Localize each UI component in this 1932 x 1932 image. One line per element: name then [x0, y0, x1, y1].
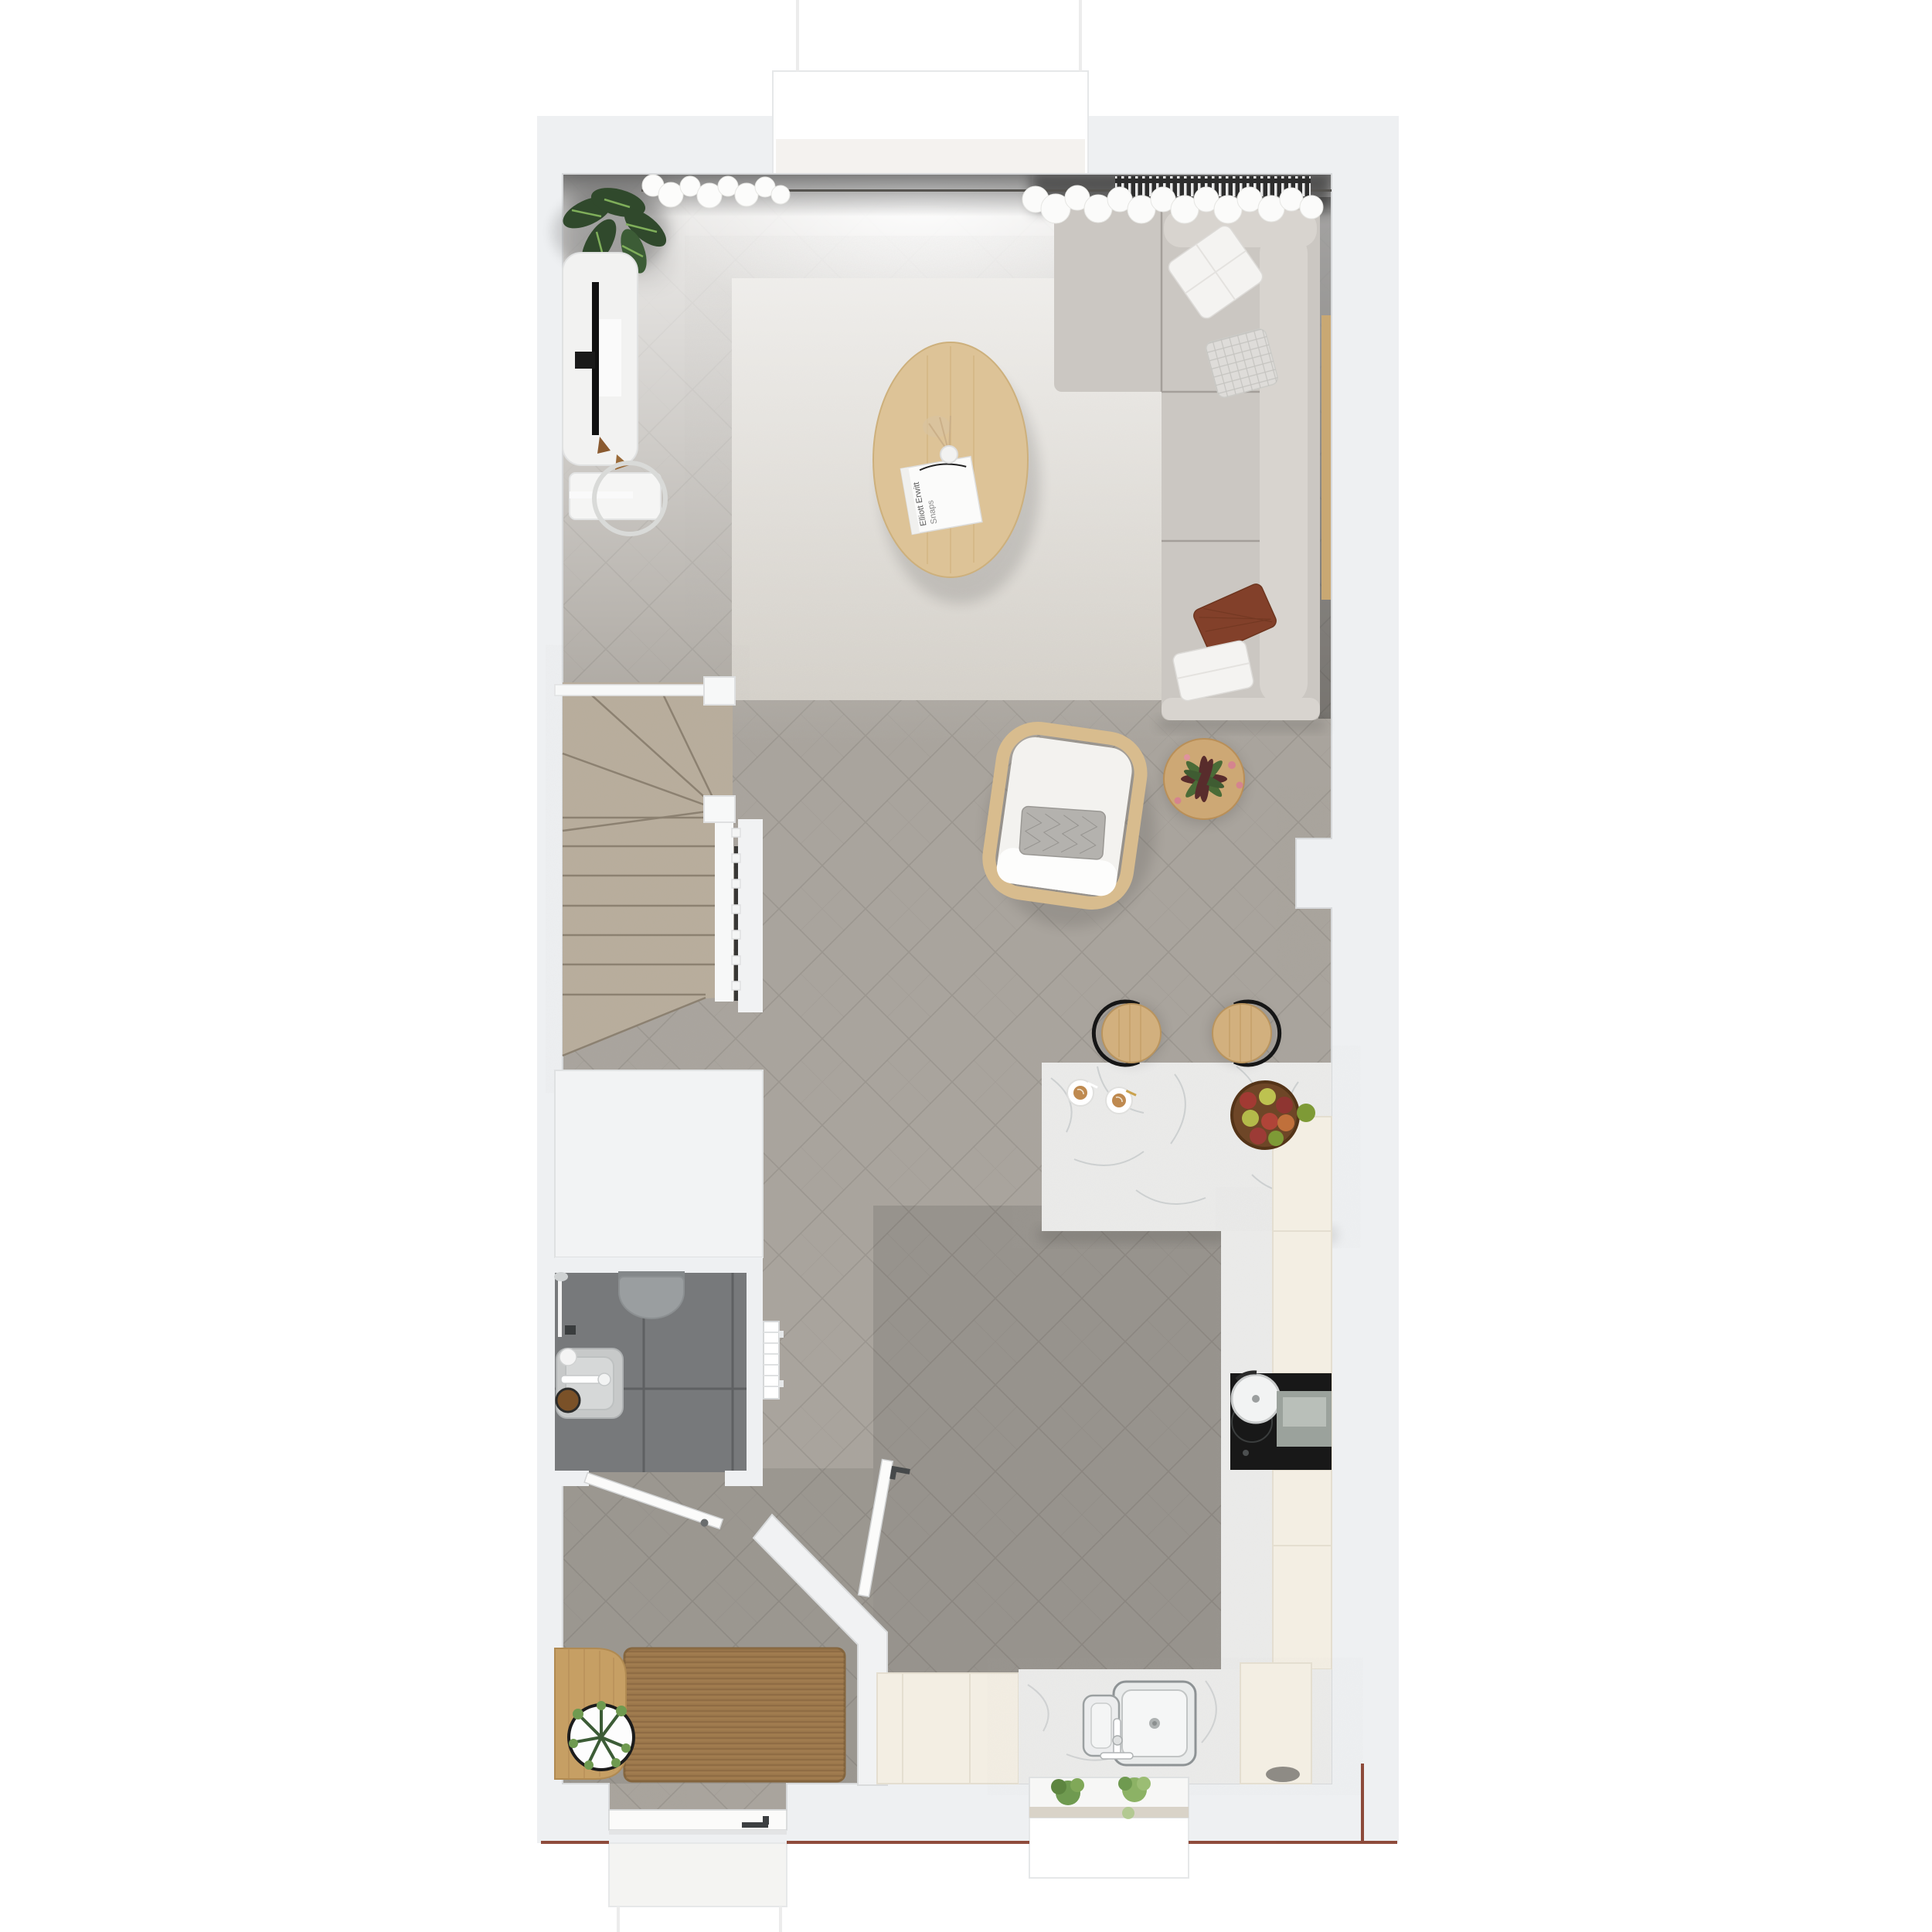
window-bay-kitchen	[1029, 1816, 1189, 1878]
tv-bracket	[575, 352, 595, 369]
pot-lid-knob	[1252, 1395, 1260, 1403]
window-sill	[1029, 1807, 1189, 1818]
round-dish	[556, 1389, 580, 1412]
plant-sprig	[584, 1760, 594, 1770]
understairs-closet	[555, 1070, 763, 1257]
apple	[1276, 1097, 1293, 1114]
plant-sprig	[621, 1743, 631, 1753]
corner-cabinet	[1240, 1663, 1311, 1784]
faucet-head	[598, 1373, 611, 1386]
curtain-fold	[658, 182, 683, 207]
coffee-table: Elliott Erwitt Snaps	[873, 342, 1028, 577]
apple	[1261, 1113, 1278, 1130]
tulip	[1236, 782, 1243, 789]
baluster	[732, 905, 740, 913]
curtain-fold	[1280, 188, 1303, 211]
photo-book: Elliott Erwitt Snaps	[900, 457, 982, 535]
window-reveal-line	[796, 0, 799, 71]
curtain-fold	[1300, 196, 1323, 219]
newel-post	[704, 796, 735, 822]
stair-wall-strip	[738, 819, 763, 1012]
console-shelf	[595, 319, 621, 396]
appliance-top	[1283, 1397, 1326, 1427]
plant-sprig	[616, 1706, 627, 1716]
soap-dispenser	[560, 1349, 577, 1366]
baluster	[732, 854, 740, 862]
handrail	[555, 685, 709, 696]
bathroom-wall-right	[747, 1257, 763, 1486]
apple	[1240, 1092, 1257, 1109]
doormat	[624, 1648, 845, 1781]
sofa-armrest	[1162, 698, 1320, 720]
apple	[1250, 1128, 1267, 1145]
tulip	[1228, 761, 1236, 769]
plant-sprig	[569, 1739, 578, 1748]
apple	[1242, 1110, 1259, 1127]
staircase	[555, 677, 763, 1056]
plant-sprig	[573, 1709, 583, 1719]
window-recess-floor	[776, 139, 1085, 175]
tulip	[1184, 754, 1190, 760]
baluster	[732, 930, 740, 939]
armchair-pillow	[1019, 806, 1106, 859]
sofa-back-right	[1260, 232, 1308, 705]
bathroom-wall-bottom	[555, 1471, 589, 1486]
curtain-fold	[771, 185, 790, 204]
apple	[1268, 1131, 1284, 1146]
cooktop	[1230, 1372, 1332, 1470]
apple	[1259, 1088, 1276, 1105]
floor-plan-render: Elliott Erwitt Snaps	[0, 0, 1932, 1932]
baluster	[732, 828, 740, 837]
baluster	[732, 981, 740, 990]
front-door-handle	[763, 1816, 769, 1825]
stool-seat	[1102, 1004, 1161, 1063]
newel-post	[704, 677, 735, 705]
apple	[1297, 1104, 1315, 1122]
tv-console	[563, 253, 638, 470]
curtain-fold	[735, 183, 758, 206]
apple	[1277, 1114, 1294, 1131]
armchair	[985, 724, 1145, 908]
stair-gap-shadow	[734, 846, 738, 1001]
sink-drain	[1152, 1721, 1157, 1726]
washbasin	[556, 1349, 623, 1418]
side-table-with-plant	[1162, 739, 1246, 824]
entry-bench	[555, 1648, 634, 1779]
sofa-chaise	[1054, 206, 1167, 392]
counter-bottom-run	[877, 1663, 1332, 1784]
herb-window-box	[1029, 1777, 1189, 1819]
baluster	[732, 956, 740, 964]
window-reveal-line	[1079, 0, 1082, 71]
baluster	[732, 879, 740, 888]
door-reveal-line	[779, 1906, 782, 1932]
lamp-arm	[570, 492, 633, 498]
bathroom-wall-bottom	[725, 1471, 747, 1486]
tulip	[1175, 798, 1182, 804]
floor-plan-canvas: Elliott Erwitt Snaps	[0, 0, 1932, 1932]
bathroom-wall-top	[555, 1257, 763, 1273]
threshold	[609, 1830, 787, 1835]
wood-ledge	[1321, 315, 1331, 600]
door-reveal-line	[617, 1906, 620, 1932]
stool-seat	[1213, 1004, 1271, 1063]
sofa-shadow	[1159, 719, 1325, 730]
potted-plant	[569, 1701, 634, 1770]
corner-appliance	[1266, 1767, 1300, 1782]
toilet	[618, 1271, 685, 1318]
plant-sprig	[597, 1701, 606, 1710]
balustrade	[715, 822, 733, 1002]
faucet	[561, 1376, 601, 1383]
plant-sprig	[611, 1758, 621, 1767]
front-door	[609, 1810, 787, 1835]
